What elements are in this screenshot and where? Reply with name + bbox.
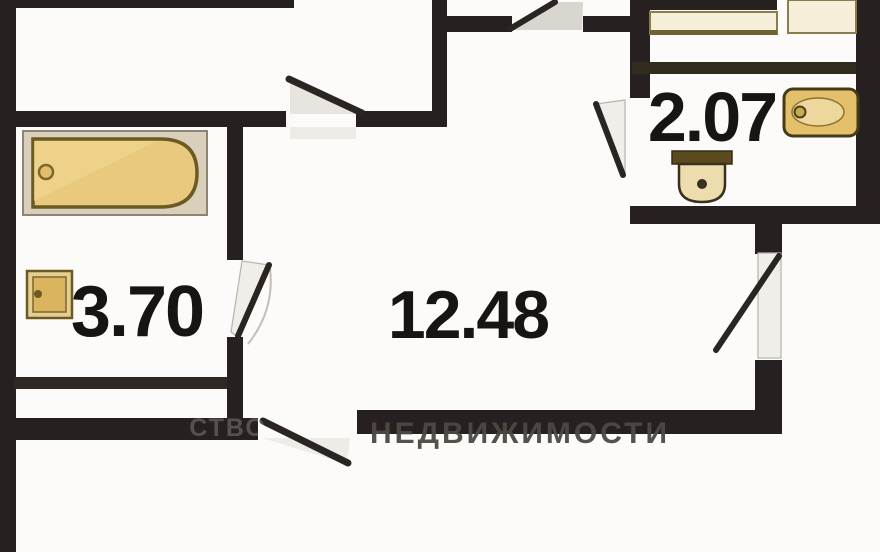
wall-vertical-c-upper [755, 224, 782, 254]
wall-vertical-c-lower [755, 360, 782, 418]
room-area-label-bathroom: 3.70 [71, 272, 203, 352]
washbasin-tap-icon [795, 107, 806, 118]
watermark-text: НЕДВИЖИМОСТИ [370, 417, 670, 450]
wall-top-strip-left [16, 0, 294, 8]
door-topleft-notch [290, 127, 356, 139]
toilet-drain-icon [697, 179, 707, 189]
room-area-label-hall: 12.48 [388, 277, 548, 353]
wall-right-outer [856, 0, 880, 224]
wall-bathroom-bottom-thin [14, 377, 227, 389]
wall-wc-bottom [630, 206, 880, 224]
wall-top-mid-b [583, 16, 630, 32]
wall-vertical-a [432, 0, 447, 127]
floor-plan-canvas: 3.70 12.48 2.07 СТВО НЕДВИЖИМОСТИ [0, 0, 880, 552]
wall-vertical-d-upper [227, 127, 243, 260]
kitchen-counter-edge [650, 30, 777, 35]
wall-vertical-d-lower [227, 337, 243, 418]
room-area-label-wc: 2.07 [648, 78, 776, 156]
washbasin-small-icon [27, 271, 72, 318]
watermark-prefix: СТВО [189, 414, 267, 442]
kitchen-counter-icon [788, 0, 856, 33]
wall-topleft-bottom-a [16, 111, 286, 127]
toilet-icon [672, 151, 732, 202]
washbasin-icon [784, 89, 858, 136]
bathtub-drain-icon [39, 165, 53, 179]
bathtub-icon [23, 131, 207, 215]
washbasin-small-tap-icon [34, 290, 42, 298]
wall-left-outer [0, 0, 16, 552]
wall-top-strip-right [650, 0, 777, 10]
wall-wc-top [632, 62, 856, 74]
floor-plan: 3.70 12.48 2.07 СТВО НЕДВИЖИМОСТИ [0, 0, 880, 552]
wall-top-mid-a [447, 16, 512, 32]
